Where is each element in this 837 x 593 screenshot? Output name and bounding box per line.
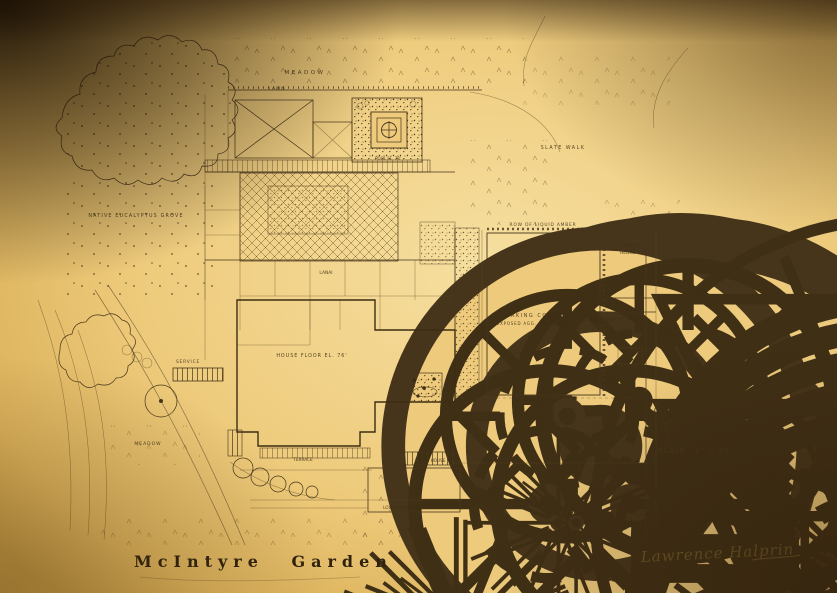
eucalyptus-trunk-dots — [62, 180, 217, 300]
plan-title: McIntyre Garden — [134, 552, 393, 571]
dark-planted-bed — [408, 373, 442, 402]
label-lanai: LANAI — [319, 270, 332, 276]
label-terrace: TERRACE — [292, 457, 313, 462]
label-planting: PLANTING — [527, 397, 556, 403]
label-lawn: LAWN — [268, 86, 285, 92]
label-entrance-road: ENTRANCE ROAD — [585, 317, 650, 323]
scale-note: SCALE : 1" = 30' — [658, 447, 732, 455]
label-lath-house: LATH HOUSE — [419, 458, 446, 463]
label-clipped-2: HEDGE — [620, 250, 636, 256]
label-house-floor: HOUSE FLOOR EL. 76' — [276, 353, 347, 359]
label-parking-surface: EXPOSED AGG. CONCRETE — [497, 321, 567, 326]
label-lower-terrace: LOWER TERRACE — [383, 505, 419, 510]
service-steps — [173, 368, 223, 381]
label-service: SERVICE — [176, 359, 200, 365]
label-liquidambar: ROW OF LIQUID AMBER — [510, 222, 577, 228]
label-parking-court: PARKING COURT — [502, 313, 562, 319]
site-plan-drawing: MEADOW LAWN NATIVE EUCALYPTUS GROVE SLAT… — [0, 0, 837, 593]
label-meadow-top: MEADOW — [285, 70, 326, 76]
label-eucalyptus-grove: NATIVE EUCALYPTUS GROVE — [88, 213, 183, 219]
upper-walk — [205, 160, 455, 172]
scanned-plan-photo: MEADOW LAWN NATIVE EUCALYPTUS GROVE SLAT… — [0, 0, 837, 593]
label-slate-walk: SLATE WALK — [541, 145, 586, 151]
label-meadow-lower: MEADOW — [134, 441, 161, 447]
label-pool: POOL EL. 78' — [375, 156, 401, 161]
label-clipped-1: CLIPPED — [620, 243, 639, 249]
fountain-plaza — [352, 98, 422, 162]
